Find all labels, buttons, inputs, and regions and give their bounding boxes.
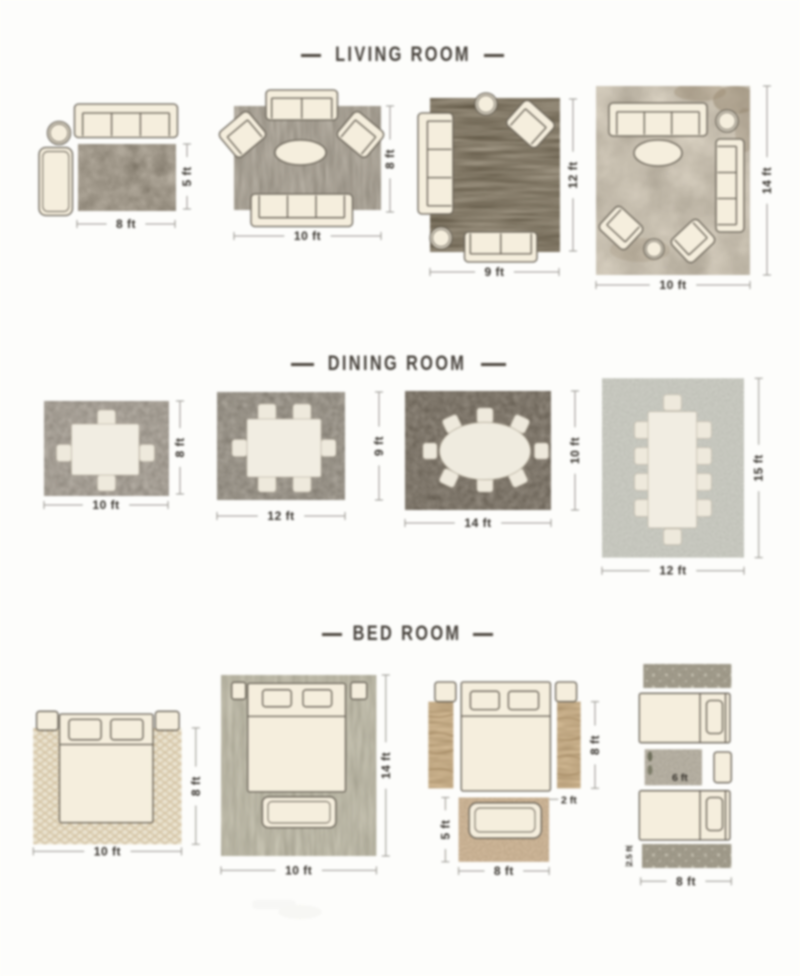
svg-text:8 ft: 8 ft	[494, 864, 514, 878]
svg-text:9 ft: 9 ft	[372, 436, 386, 456]
svg-text:12 ft: 12 ft	[659, 564, 686, 578]
svg-text:DINING ROOM: DINING ROOM	[328, 351, 467, 374]
svg-text:8 ft: 8 ft	[116, 217, 136, 231]
svg-text:10 ft: 10 ft	[94, 844, 121, 858]
svg-text:5 ft: 5 ft	[180, 167, 194, 187]
svg-text:BED ROOM: BED ROOM	[353, 621, 462, 644]
svg-text:14 ft: 14 ft	[379, 752, 393, 779]
svg-text:10 ft: 10 ft	[568, 437, 582, 464]
svg-text:6 ft: 6 ft	[672, 772, 688, 784]
svg-text:10 ft: 10 ft	[659, 278, 686, 292]
svg-text:10 ft: 10 ft	[285, 863, 312, 877]
svg-text:8 ft: 8 ft	[588, 735, 602, 755]
svg-text:8 ft: 8 ft	[383, 149, 397, 169]
svg-text:14 ft: 14 ft	[760, 167, 774, 194]
svg-text:12 ft: 12 ft	[566, 161, 580, 188]
svg-text:8 ft: 8 ft	[173, 438, 187, 458]
svg-text:15 ft: 15 ft	[752, 454, 766, 481]
svg-text:2.5 ft: 2.5 ft	[624, 846, 634, 866]
svg-text:14 ft: 14 ft	[464, 516, 491, 530]
svg-text:5 ft: 5 ft	[438, 820, 452, 840]
svg-text:8 ft: 8 ft	[189, 776, 203, 796]
svg-text:12 ft: 12 ft	[267, 509, 294, 523]
svg-text:9 ft: 9 ft	[485, 265, 505, 279]
svg-text:LIVING ROOM: LIVING ROOM	[335, 42, 471, 65]
svg-text:10 ft: 10 ft	[92, 498, 119, 512]
svg-text:8 ft: 8 ft	[676, 874, 696, 888]
svg-text:10 ft: 10 ft	[294, 229, 321, 243]
svg-text:2 ft: 2 ft	[561, 795, 577, 807]
